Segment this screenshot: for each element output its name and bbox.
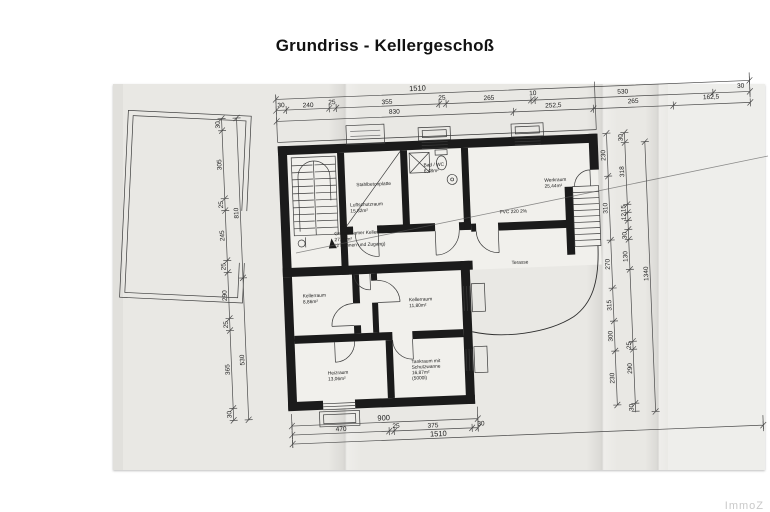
floor-note: PVC 220 2% [499, 208, 527, 215]
dim: 355 [381, 99, 393, 106]
dim: 305 [216, 159, 223, 171]
floorplan-drawing: Stahlbetonplatte Luftschutzraum15,82m² B… [0, 0, 770, 512]
dim: 270 [604, 258, 611, 270]
dim: 25 [220, 263, 227, 271]
dim: 252,5 [545, 102, 562, 110]
dim: 470 [336, 426, 348, 433]
dim-top-overall: 1510 [409, 83, 426, 93]
dim: 30 [226, 410, 233, 418]
dim: 25 [438, 95, 446, 102]
dim: 30 [621, 231, 628, 239]
dim: 265 [628, 98, 640, 105]
dim: 230 [609, 372, 616, 384]
dim: 830 [389, 108, 401, 115]
dim: 310 [602, 202, 609, 214]
dim: 318 [619, 166, 626, 178]
dim: 810 [233, 207, 240, 219]
dim: 290 [627, 362, 634, 374]
dim: 12 [621, 212, 628, 220]
dim: 15 [620, 204, 627, 212]
dim: 30 [477, 420, 485, 427]
dim: 365 [224, 364, 231, 376]
dim: 25 [223, 320, 230, 328]
watermark: ImmoZ [725, 500, 764, 512]
dim: 300 [607, 330, 614, 342]
dim: 530 [239, 354, 246, 366]
dim: 25 [328, 99, 336, 106]
dim: 30 [628, 403, 635, 411]
garage-outline [120, 110, 258, 303]
dim: 315 [606, 299, 613, 311]
dim: 265 [483, 95, 495, 102]
dim: 245 [219, 230, 226, 242]
dim: 240 [303, 102, 315, 109]
dim-bottom-900: 900 [377, 413, 390, 422]
dim: 25 [626, 341, 633, 349]
dim: 162,5 [703, 94, 720, 102]
room-label-terrace: Terasse [511, 259, 528, 266]
dim: 1340 [643, 266, 651, 281]
dim: 10 [529, 90, 537, 97]
dim: 230 [600, 149, 607, 161]
dim: 30 [617, 133, 624, 141]
dim: 25 [218, 201, 225, 209]
dim: 30 [277, 102, 285, 109]
dim: 30 [215, 121, 222, 129]
dim: 30 [737, 83, 745, 90]
dim: 25 [392, 423, 400, 430]
dim: 130 [622, 251, 629, 263]
dim: 290 [221, 290, 228, 302]
dim: 530 [617, 88, 629, 95]
dim-bottom-overall: 1510 [430, 429, 447, 439]
screenshot-root: Grundriss - Kellergeschoß [0, 0, 770, 512]
